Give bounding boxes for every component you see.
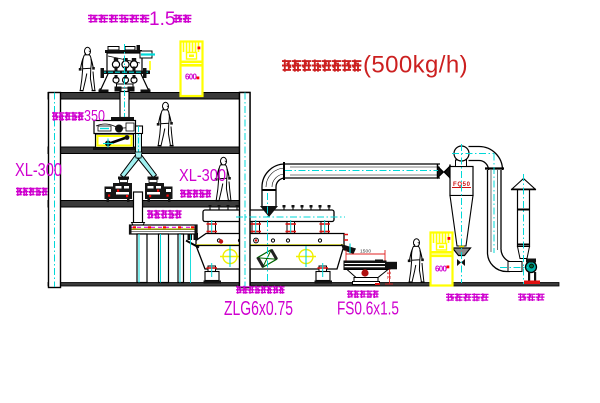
svg-text:600: 600 [435,265,448,274]
svg-text:XL-300: XL-300 [179,165,226,185]
svg-text:ZLG6x0.75: ZLG6x0.75 [224,298,293,320]
svg-text:1500: 1500 [360,249,371,255]
svg-text:600: 600 [185,73,198,82]
svg-text:FS0.6x1.5: FS0.6x1.5 [337,299,399,319]
svg-text:XL-300: XL-300 [15,159,62,180]
svg-text:350: 350 [84,108,105,125]
svg-text:(500kg/h): (500kg/h) [363,52,468,79]
svg-text:1.5: 1.5 [149,9,175,30]
